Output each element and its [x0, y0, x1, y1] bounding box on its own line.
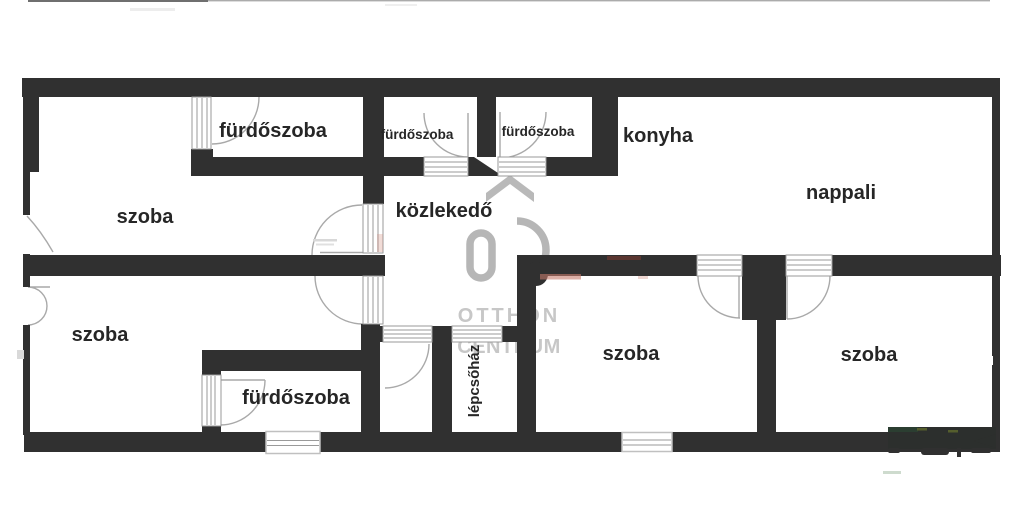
- svg-text:szoba: szoba: [72, 324, 130, 346]
- svg-text:OTTHON: OTTHON: [458, 305, 560, 327]
- svg-text:fürdőszoba: fürdőszoba: [242, 387, 351, 409]
- svg-text:szoba: szoba: [117, 206, 175, 228]
- svg-text:közlekedő: közlekedő: [396, 200, 493, 222]
- svg-text:szoba: szoba: [841, 344, 899, 366]
- svg-text:fürdőszoba: fürdőszoba: [502, 124, 575, 139]
- svg-text:fürdőszoba: fürdőszoba: [381, 127, 454, 142]
- svg-text:szoba: szoba: [603, 343, 661, 365]
- svg-text:konyha: konyha: [623, 125, 694, 147]
- svg-text:nappali: nappali: [806, 182, 876, 204]
- svg-text:fürdőszoba: fürdőszoba: [219, 120, 328, 142]
- svg-text:lépcsőház: lépcsőház: [466, 345, 483, 418]
